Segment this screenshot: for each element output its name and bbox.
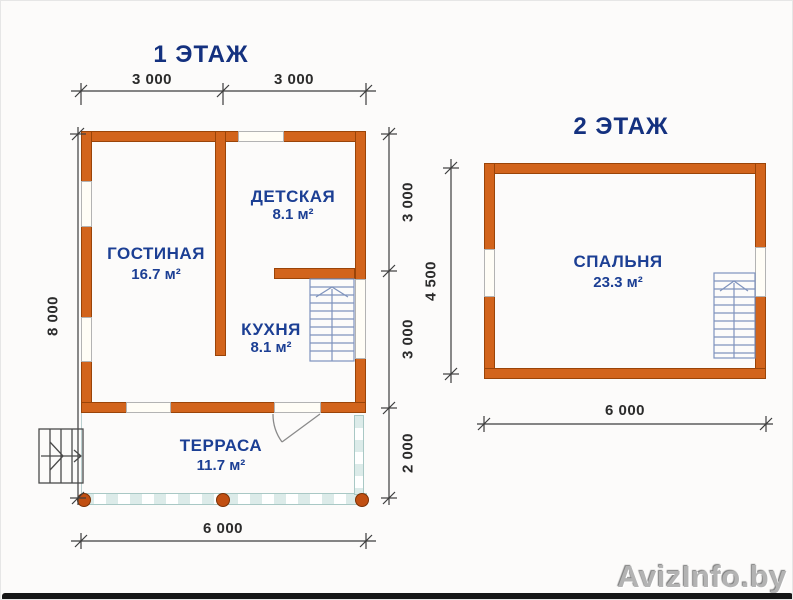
- bottom-bar: [2, 593, 793, 600]
- floor2-window-left: [484, 249, 495, 297]
- floor2-stairs-icon: [714, 273, 755, 358]
- entrance-steps-icon: [39, 429, 83, 483]
- room-area-terrace: 11.7 м²: [141, 457, 301, 474]
- terrace-railing-right: [354, 415, 364, 495]
- terrace-post-middle: [216, 493, 230, 507]
- dim-floor1-top-right: 3 000: [239, 71, 349, 88]
- floor2-window-right: [755, 247, 766, 297]
- dim-floor1-right-upper: 3 000: [400, 182, 417, 222]
- dim-floor1-right-lower: 2 000: [400, 433, 417, 473]
- stairs-up-arrow-icon: [720, 281, 748, 291]
- floor2-wall-top: [484, 163, 766, 174]
- floor1-window-right: [355, 279, 366, 359]
- floor1-window-top: [238, 131, 284, 142]
- terrace-post-left: [77, 493, 91, 507]
- floor-plan-canvas: 1 ЭТАЖ 2 ЭТАЖ ГОСТИНАЯ 16.7 м² ДЕТСКАЯ 8…: [0, 0, 793, 600]
- dim-floor2-bottom: 6 000: [565, 402, 685, 419]
- terrace-edge-left: [81, 413, 82, 495]
- room-label-children: ДЕТСКАЯ: [223, 187, 363, 207]
- room-label-bedroom: СПАЛЬНЯ: [538, 252, 698, 272]
- linework-layer: [1, 1, 793, 600]
- floor1-window-left-upper: [81, 181, 92, 227]
- watermark: AvizInfo.by: [617, 559, 787, 595]
- dim-floor2-left: 4 500: [423, 261, 440, 301]
- room-area-living: 16.7 м²: [76, 266, 236, 283]
- room-area-children: 8.1 м²: [223, 206, 363, 223]
- dim-floor1-bottom: 6 000: [163, 520, 283, 537]
- dim-floor1-top-left: 3 000: [97, 71, 207, 88]
- entrance-right-arrow-icon: [74, 450, 81, 462]
- floor1-title: 1 ЭТАЖ: [101, 41, 301, 69]
- floor1-wall-interior-horizontal: [274, 268, 355, 279]
- floor1-dimension-lines: [70, 83, 397, 549]
- floor2-wall-bottom: [484, 368, 766, 379]
- room-area-bedroom: 23.3 м²: [538, 274, 698, 291]
- room-label-terrace: ТЕРРАСА: [141, 436, 301, 456]
- stairs-up-arrow-icon: [316, 287, 348, 297]
- dim-floor1-left: 8 000: [45, 296, 62, 336]
- floor2-title: 2 ЭТАЖ: [521, 113, 721, 141]
- floor1-terrace-door-opening: [274, 402, 321, 413]
- floor1-wall-bottom: [81, 402, 366, 413]
- room-area-kitchen: 8.1 м²: [223, 339, 319, 356]
- terrace-post-right: [355, 493, 369, 507]
- floor1-window-bottom: [126, 402, 171, 413]
- floor1-wall-right: [355, 131, 366, 413]
- floor1-window-left-lower: [81, 317, 92, 362]
- dim-floor1-right-middle: 3 000: [400, 319, 417, 359]
- room-label-living: ГОСТИНАЯ: [76, 244, 236, 264]
- room-label-kitchen: КУХНЯ: [223, 320, 319, 340]
